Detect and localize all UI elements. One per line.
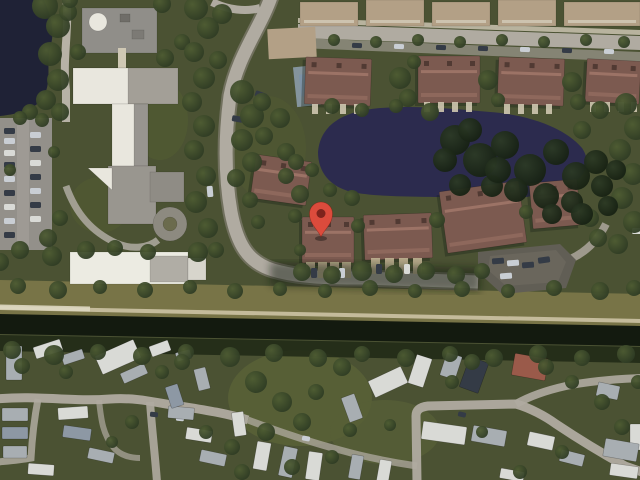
condo-rows-south xyxy=(301,56,640,109)
school-roof-south xyxy=(108,166,156,224)
school-walkstrip xyxy=(118,48,126,70)
condo-row-north xyxy=(300,0,640,26)
pin-hole xyxy=(317,209,326,218)
satellite-map[interactable] xyxy=(0,0,640,480)
school-roof-dome xyxy=(89,13,107,31)
